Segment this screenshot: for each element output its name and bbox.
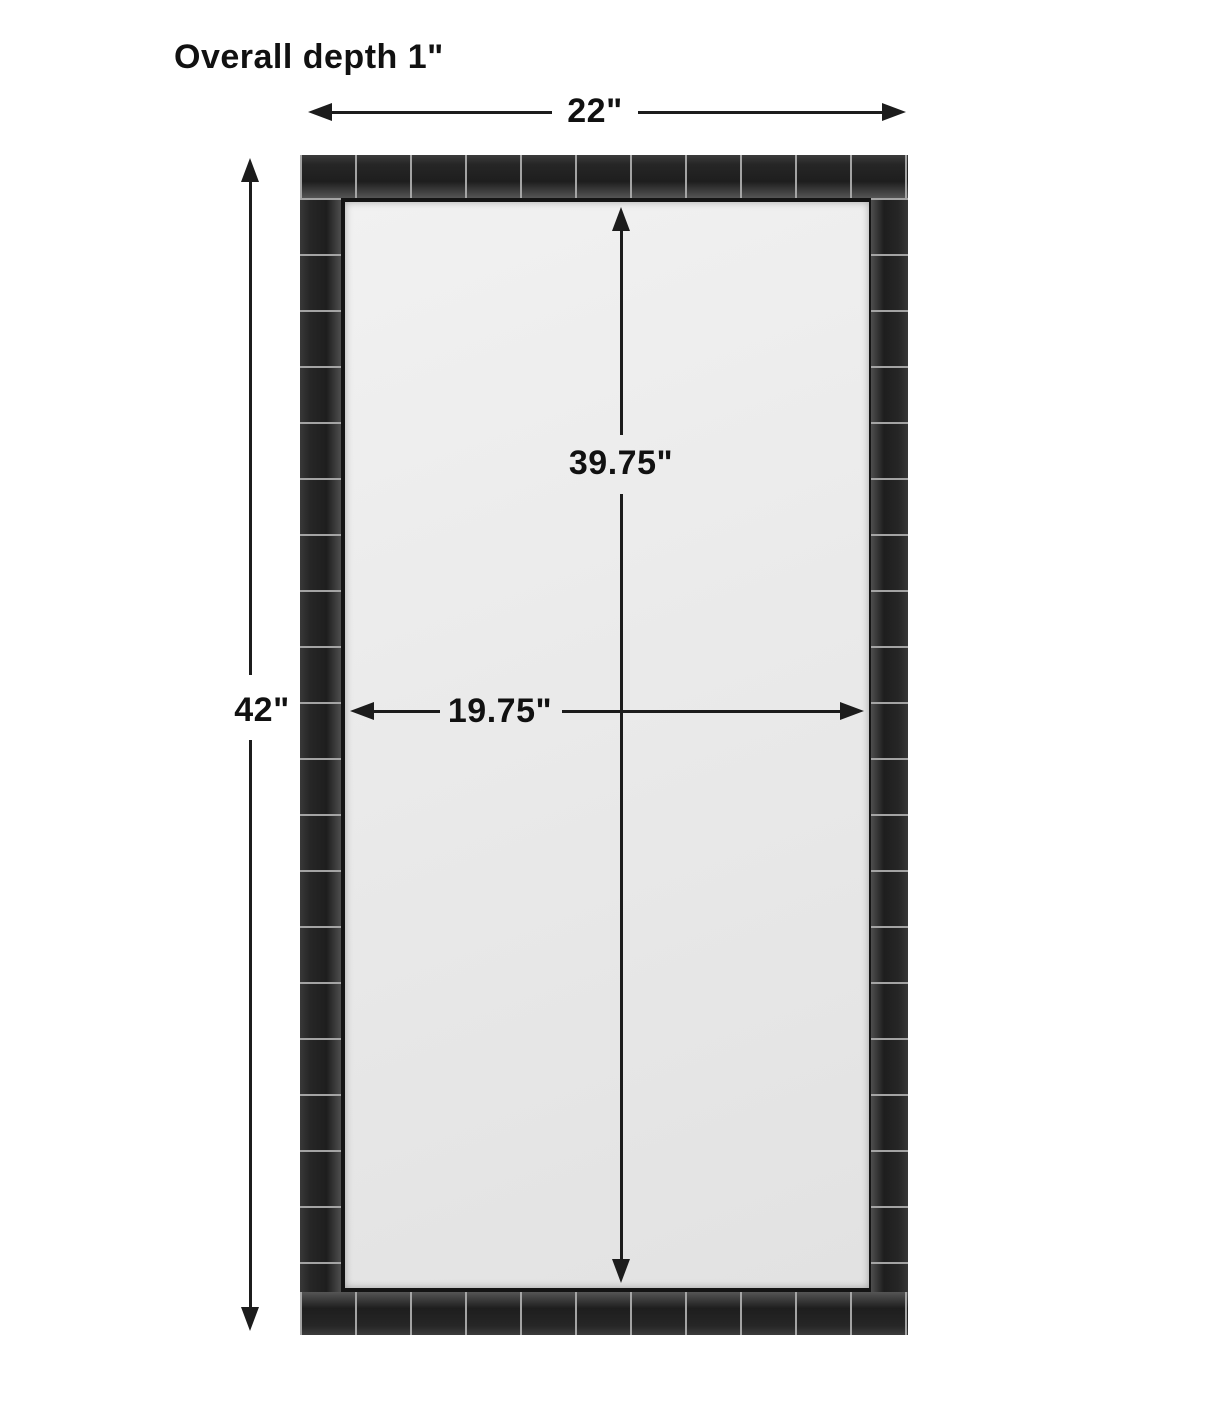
dimension-line (620, 494, 623, 1259)
mirror-glass (345, 202, 869, 1288)
frame-tiles-top (300, 155, 908, 198)
dimension-line (330, 111, 552, 114)
arrowhead-down (241, 1307, 259, 1331)
dimension-line (249, 740, 252, 1307)
dimension-line (249, 180, 252, 675)
dimension-line (372, 710, 440, 713)
arrowhead-up (241, 158, 259, 182)
arrowhead-right (840, 702, 864, 720)
inner-height-value: 39.75" (546, 444, 696, 483)
frame-tiles-bottom (300, 1292, 908, 1335)
frame-tiles-left (300, 198, 341, 1292)
arrowhead-down (612, 1259, 630, 1283)
arrowhead-left (350, 702, 374, 720)
product-dimension-diagram: Overall depth 1" 22" 42" 39.75" 19.75" (0, 0, 1214, 1412)
dimension-line (562, 710, 840, 713)
arrowhead-up (612, 207, 630, 231)
arrowhead-left (308, 103, 332, 121)
frame-tiles-right (871, 198, 908, 1292)
overall-depth-label: Overall depth 1" (174, 38, 444, 77)
overall-height-value: 42" (226, 691, 298, 730)
arrowhead-right (882, 103, 906, 121)
inner-width-value: 19.75" (440, 692, 560, 731)
mirror-frame (300, 155, 908, 1335)
dimension-line (638, 111, 884, 114)
dimension-line (620, 229, 623, 435)
overall-width-value: 22" (555, 92, 635, 131)
